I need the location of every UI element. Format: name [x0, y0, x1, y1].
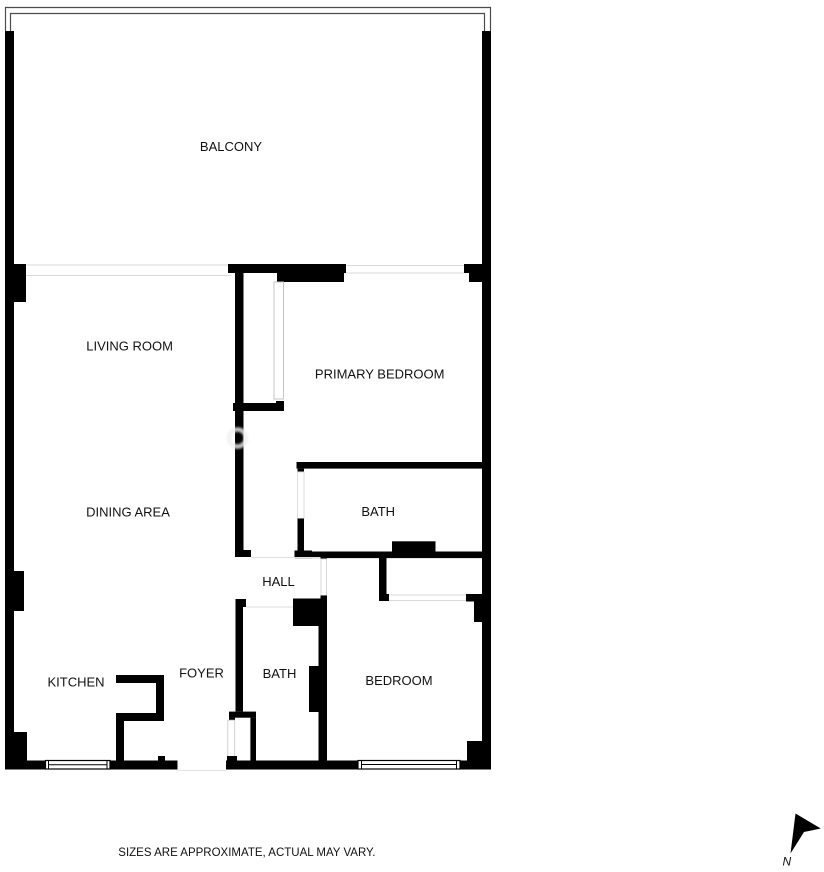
- svg-text:BATH: BATH: [263, 666, 297, 681]
- svg-text:LIVING ROOM: LIVING ROOM: [86, 339, 173, 354]
- svg-text:FOYER: FOYER: [179, 665, 224, 680]
- svg-text:SIZES ARE APPROXIMATE, ACTUAL: SIZES ARE APPROXIMATE, ACTUAL MAY VARY.: [118, 847, 375, 859]
- svg-text:BATH: BATH: [361, 504, 395, 519]
- svg-text:PRIMARY BEDROOM: PRIMARY BEDROOM: [315, 366, 445, 381]
- svg-text:BALCONY: BALCONY: [200, 139, 262, 154]
- svg-text:DINING AREA: DINING AREA: [86, 505, 170, 520]
- svg-text:KITCHEN: KITCHEN: [47, 675, 104, 690]
- svg-text:BEDROOM: BEDROOM: [365, 673, 432, 688]
- svg-text:HALL: HALL: [262, 574, 295, 589]
- svg-text:N: N: [783, 854, 792, 868]
